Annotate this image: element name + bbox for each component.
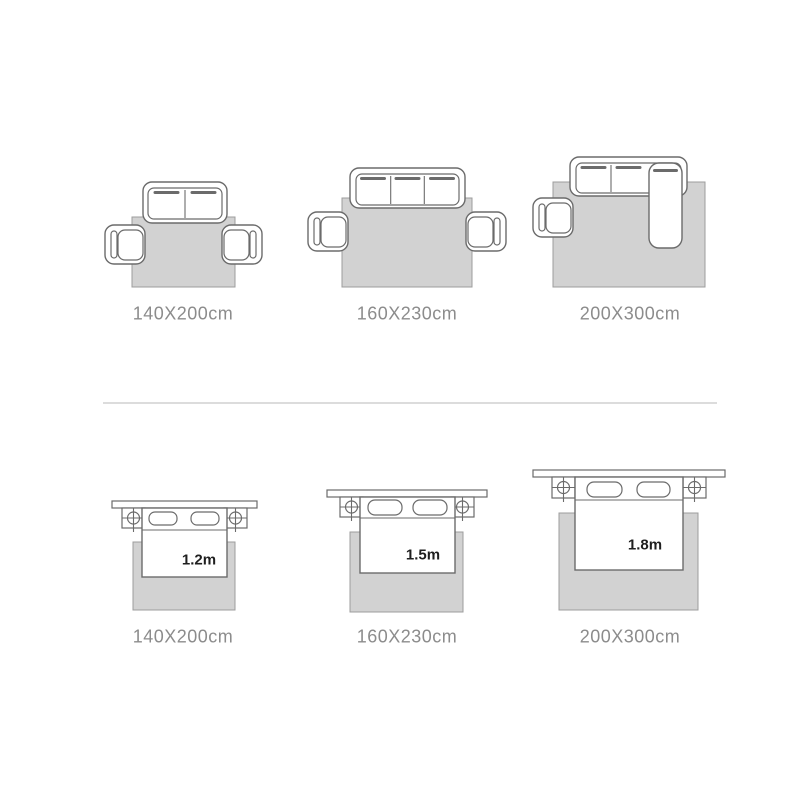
bedroom-size-label-160x230: 160X230cm <box>357 627 458 648</box>
nightstand-right-icon <box>683 477 706 502</box>
rug-size-guide: 140X200cm 160X230cm <box>0 0 800 800</box>
bedroom-diagram-140x200 <box>100 490 260 625</box>
pillow-icon <box>413 500 447 515</box>
living-size-label-200x300: 200X300cm <box>580 304 681 325</box>
livingroom-diagram-160x230 <box>305 140 510 295</box>
bed-width-text-1-5m: 1.5m <box>406 547 440 564</box>
chaise-icon <box>649 163 682 248</box>
pillow-icon <box>368 500 402 515</box>
pillow-icon <box>637 482 670 497</box>
armchair-left-icon <box>533 198 573 237</box>
headboard-icon <box>112 501 257 508</box>
livingroom-diagram-200x300 <box>520 140 720 295</box>
armchair-left-icon <box>308 212 348 251</box>
pillow-icon <box>149 512 177 525</box>
armchair-right-icon <box>222 225 262 264</box>
armchair-left-icon <box>105 225 145 264</box>
bedroom-size-label-200x300: 200X300cm <box>580 627 681 648</box>
headboard-icon <box>533 470 725 477</box>
pillow-icon <box>587 482 622 497</box>
rug-icon <box>132 217 235 287</box>
bed-width-text-1-8m: 1.8m <box>628 537 662 554</box>
living-size-label-160x230: 160X230cm <box>357 304 458 325</box>
headboard-icon <box>327 490 487 497</box>
pillow-icon <box>191 512 219 525</box>
sofa-three-seat-icon <box>350 168 465 208</box>
armchair-right-icon <box>466 212 506 251</box>
nightstand-left-icon <box>552 477 575 502</box>
rug-icon <box>342 198 472 287</box>
sofa-two-seat-icon <box>143 182 227 223</box>
bedroom-size-label-140x200: 140X200cm <box>133 627 234 648</box>
bed-width-text-1-2m: 1.2m <box>182 552 216 569</box>
section-divider <box>103 402 717 404</box>
bed-icon <box>575 477 683 570</box>
living-size-label-140x200: 140X200cm <box>133 304 234 325</box>
livingroom-diagram-140x200 <box>100 150 270 295</box>
